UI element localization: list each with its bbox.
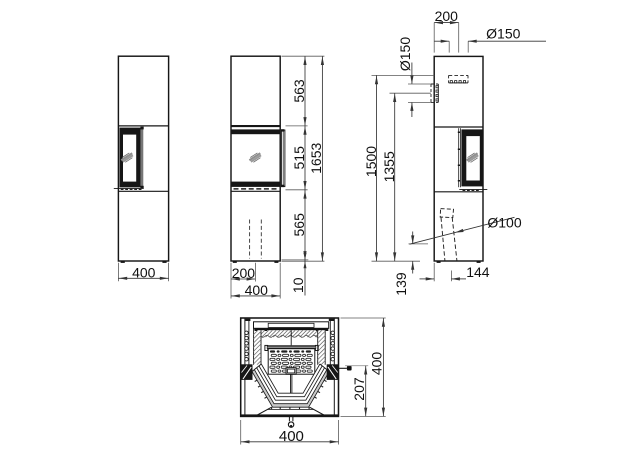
svg-text:207: 207 [351, 377, 367, 401]
svg-text:144: 144 [466, 264, 490, 280]
svg-text:515: 515 [291, 146, 307, 170]
svg-text:400: 400 [132, 265, 156, 281]
svg-text:200: 200 [232, 265, 256, 281]
svg-text:1653: 1653 [308, 143, 324, 174]
svg-text:Ø150: Ø150 [397, 37, 413, 71]
svg-text:1355: 1355 [381, 151, 397, 182]
svg-text:139: 139 [393, 272, 409, 296]
svg-text:200: 200 [435, 8, 459, 24]
svg-text:Ø100: Ø100 [487, 215, 521, 231]
svg-text:10: 10 [290, 277, 306, 293]
svg-text:Ø150: Ø150 [486, 25, 520, 41]
svg-text:400: 400 [245, 282, 269, 298]
svg-text:1500: 1500 [363, 146, 379, 177]
svg-text:565: 565 [291, 213, 307, 237]
svg-text:400: 400 [369, 352, 385, 376]
svg-text:563: 563 [291, 79, 307, 103]
svg-text:400: 400 [279, 428, 304, 445]
